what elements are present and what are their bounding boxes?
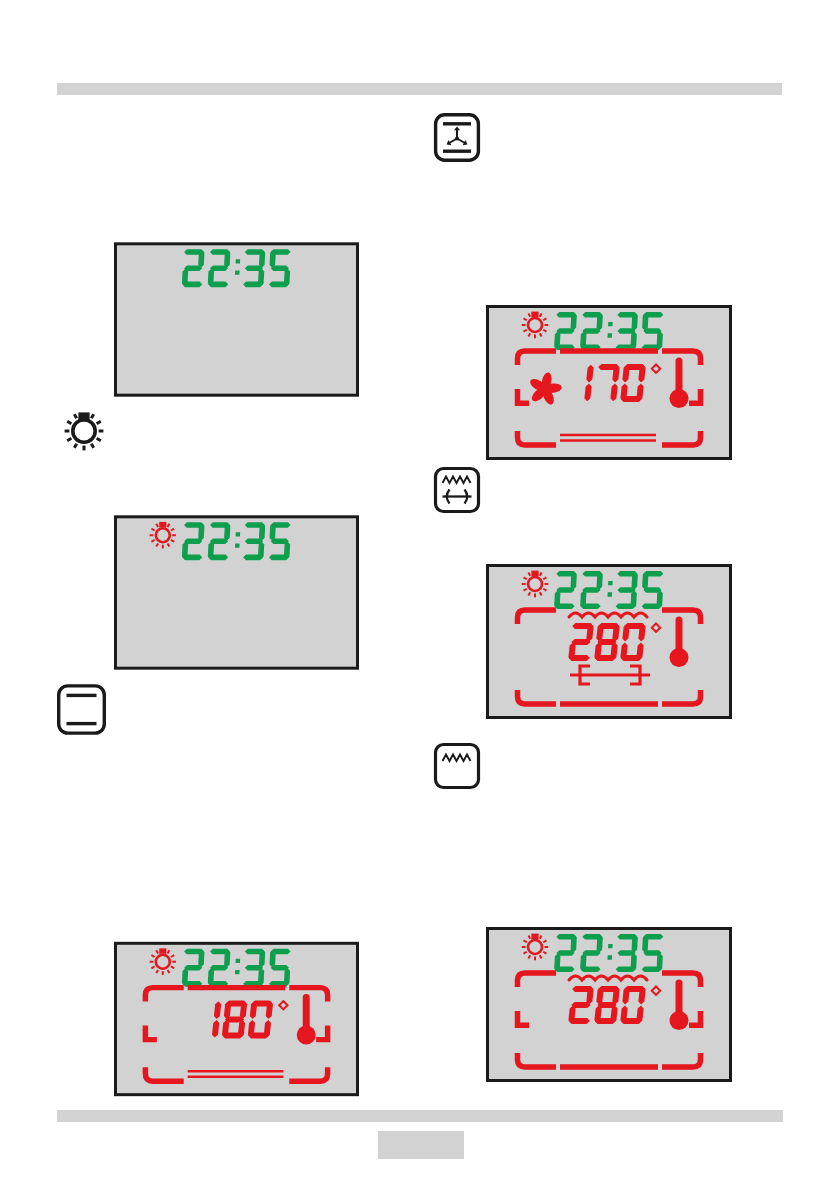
oven-light-icon xyxy=(56,402,112,456)
manual-page xyxy=(0,0,839,1191)
grill-with-rotisserie-icon xyxy=(433,466,481,514)
top-divider xyxy=(57,83,782,95)
page-number-box xyxy=(378,1131,464,1159)
lcd-display-fan-170 xyxy=(486,305,732,460)
lcd-display-conventional-180 xyxy=(114,941,359,1097)
lcd-display-clock xyxy=(114,242,359,397)
lcd-display-grill-280 xyxy=(486,927,732,1082)
fan-with-top-bottom-heat-icon xyxy=(433,112,481,163)
top-bottom-heat-icon xyxy=(56,683,107,736)
bottom-divider xyxy=(57,1110,783,1122)
lcd-display-clock-lamp xyxy=(114,515,359,670)
lcd-display-grill-rotisserie-280 xyxy=(486,564,732,719)
grill-icon xyxy=(433,742,481,790)
